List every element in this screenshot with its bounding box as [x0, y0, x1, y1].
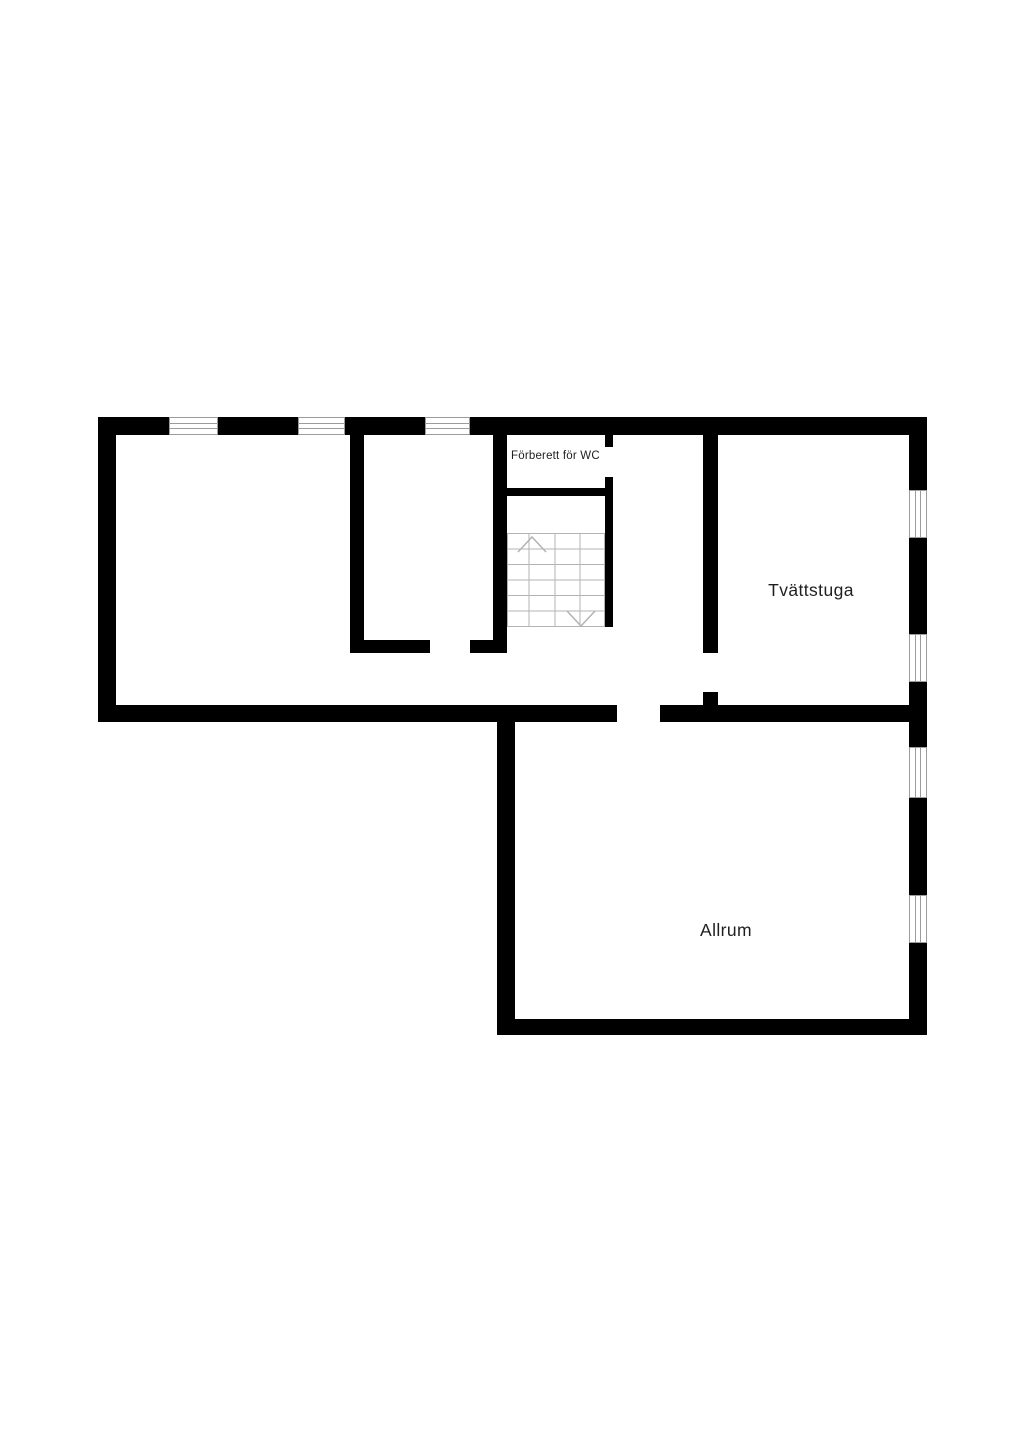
wall-room2-wc-divider — [493, 435, 507, 653]
room-label-family-room: Allrum — [660, 920, 792, 941]
staircase — [507, 533, 605, 627]
wall-south-upper-east — [660, 705, 927, 722]
floor-plan: Förberett för WC Tvättstuga Allrum — [0, 0, 1024, 1449]
stair-down-arrow-icon — [567, 611, 595, 626]
wall-wc-south-thin — [507, 488, 605, 496]
stair-up-arrow-icon — [518, 537, 546, 552]
wall-room2-south-east — [470, 640, 507, 653]
wall-south-allrum — [497, 1019, 927, 1035]
wall-stair-east — [605, 477, 613, 627]
wall-room1-room2-divider — [350, 435, 364, 653]
window-north-3 — [425, 417, 470, 435]
window-east-1 — [909, 490, 927, 538]
window-north-2 — [298, 417, 345, 435]
wall-west-exterior — [98, 417, 116, 722]
room-label-wc: Förberett för WC — [511, 450, 600, 462]
window-north-1 — [169, 417, 218, 435]
wall-south-upper-west — [98, 705, 617, 722]
wall-west-allrum — [497, 722, 515, 1034]
window-east-2 — [909, 634, 927, 682]
window-east-4 — [909, 895, 927, 943]
wall-stair-east-stub — [605, 435, 613, 447]
wall-north-exterior — [98, 417, 927, 435]
wall-laundry-west-notch — [703, 692, 718, 706]
wall-room2-south-west — [350, 640, 430, 653]
room-label-laundry: Tvättstuga — [750, 580, 872, 601]
window-east-3 — [909, 747, 927, 798]
wall-laundry-west — [703, 435, 718, 653]
